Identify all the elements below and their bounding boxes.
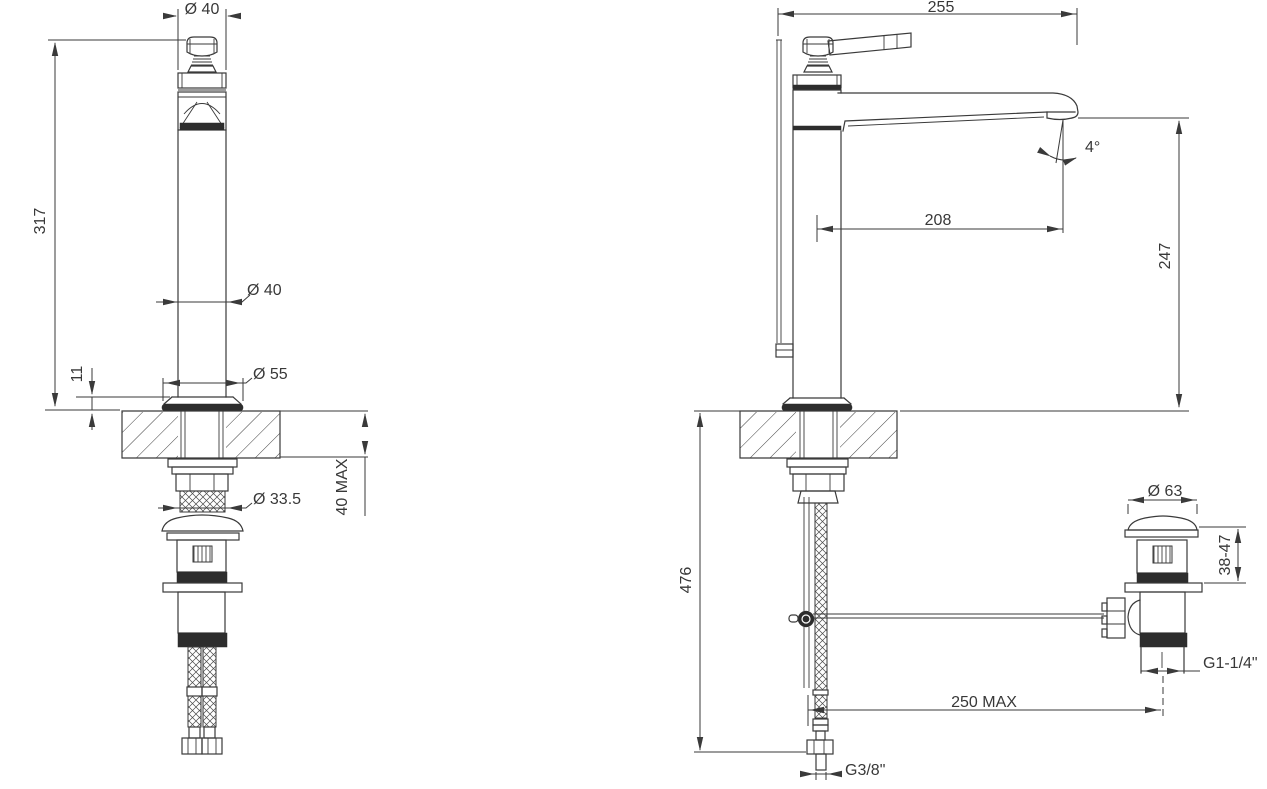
dim-label-body-diameter: Ø 40 [247,282,282,299]
dim-label-base-diameter: Ø 55 [253,366,288,383]
front-view-faucet [122,37,280,754]
popup-waste-side [1102,516,1202,720]
dim-label-depth-255: 255 [928,0,955,16]
dim-label-reach-250-max: 250 MAX [951,694,1017,711]
front-view-dimensions [45,9,368,516]
dim-label-waste-range: 38-47 [1217,534,1234,575]
dim-label-shank-diameter: Ø 33.5 [253,491,301,508]
dim-label-waste-thread: G1-1/4" [1203,655,1258,672]
dim-label-handle-diameter: Ø 40 [185,1,220,18]
dim-label-height-317: 317 [32,208,49,235]
popup-waste-front [162,515,243,647]
popup-linkage [789,497,1104,688]
dim-label-reach-208: 208 [925,212,952,229]
side-view-faucet [740,33,1104,770]
dim-label-hose-thread: G3/8" [845,762,885,779]
countertop-front [122,411,280,459]
dim-label-spout-angle: 4° [1085,139,1100,156]
supply-hose-side [807,503,833,770]
drawing-svg: Ø 40 317 Ø 40 11 Ø 55 40 MAX Ø 33.5 255 … [0,0,1267,789]
dim-label-spout-height-247: 247 [1157,243,1174,270]
dim-label-base-height-11: 11 [69,366,86,383]
supply-hoses-front [182,647,222,754]
dim-label-overall-height-476: 476 [678,567,695,594]
dim-label-deck-thickness: 40 MAX [334,458,351,515]
countertop-side [740,411,897,459]
dim-label-waste-cap-diameter: Ø 63 [1148,483,1183,500]
technical-drawing-canvas: Ø 40 317 Ø 40 11 Ø 55 40 MAX Ø 33.5 255 … [0,0,1267,789]
